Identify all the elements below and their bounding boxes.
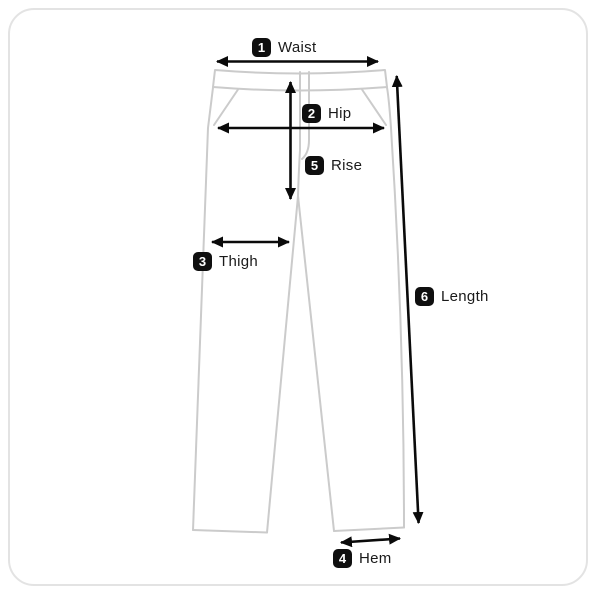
label-hem: 4 Hem xyxy=(333,549,392,568)
pants-right-pocket-line xyxy=(362,90,386,126)
label-rise-text: Rise xyxy=(331,157,362,174)
label-length-text: Length xyxy=(441,288,489,305)
label-hem-text: Hem xyxy=(359,550,392,567)
badge-3: 3 xyxy=(193,252,212,271)
pants-measurement-diagram xyxy=(0,0,600,600)
label-hip-text: Hip xyxy=(328,105,351,122)
badge-5: 5 xyxy=(305,156,324,175)
pants-right-inseam xyxy=(298,196,334,531)
label-rise: 5 Rise xyxy=(305,156,362,175)
badge-1: 1 xyxy=(252,38,271,57)
badge-6: 6 xyxy=(415,287,434,306)
badge-2: 2 xyxy=(302,104,321,123)
label-thigh: 3 Thigh xyxy=(193,252,258,271)
label-waist: 1 Waist xyxy=(252,38,316,57)
pants-left-outer-seam xyxy=(193,88,213,531)
label-hip: 2 Hip xyxy=(302,104,351,123)
pants-left-pocket-line xyxy=(214,90,238,126)
hem-arrow xyxy=(341,539,400,543)
pants-left-hem-edge xyxy=(193,530,267,533)
pants-left-inseam xyxy=(267,196,298,533)
pants-right-hem-edge xyxy=(334,528,404,532)
label-thigh-text: Thigh xyxy=(219,253,258,270)
badge-4: 4 xyxy=(333,549,352,568)
label-waist-text: Waist xyxy=(278,39,316,56)
label-length: 6 Length xyxy=(415,287,489,306)
